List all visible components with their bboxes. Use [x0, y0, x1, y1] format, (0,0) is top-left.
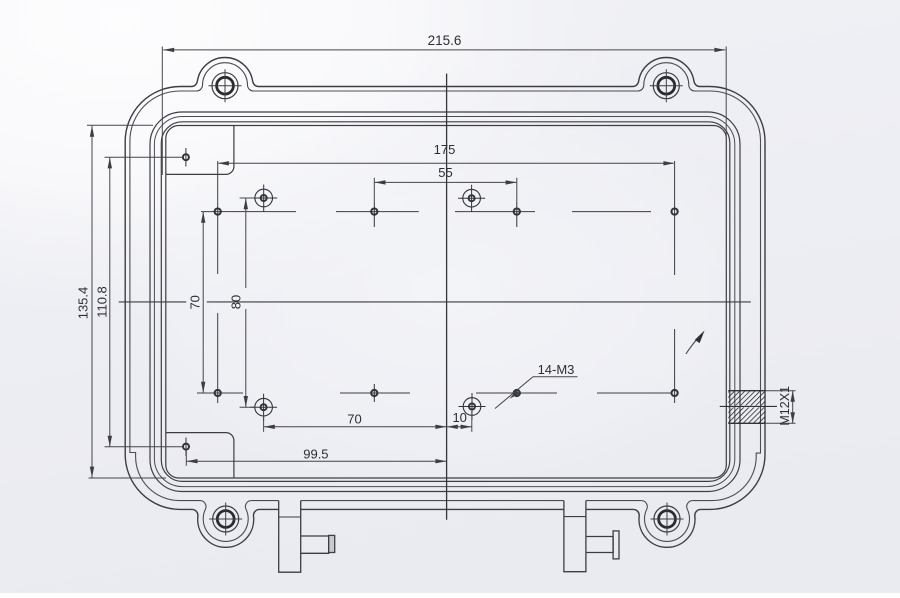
svg-text:175: 175: [434, 142, 456, 157]
svg-text:80: 80: [229, 295, 244, 309]
svg-text:110.8: 110.8: [95, 286, 110, 318]
svg-text:55: 55: [438, 165, 452, 180]
svg-text:215.6: 215.6: [428, 33, 462, 48]
svg-text:70: 70: [347, 412, 361, 427]
svg-text:M12X1: M12X1: [778, 386, 792, 426]
svg-text:14-M3: 14-M3: [538, 362, 575, 377]
svg-text:10: 10: [452, 410, 466, 425]
svg-text:135.4: 135.4: [76, 287, 91, 320]
svg-text:70: 70: [187, 295, 202, 309]
svg-text:99.5: 99.5: [303, 446, 328, 461]
